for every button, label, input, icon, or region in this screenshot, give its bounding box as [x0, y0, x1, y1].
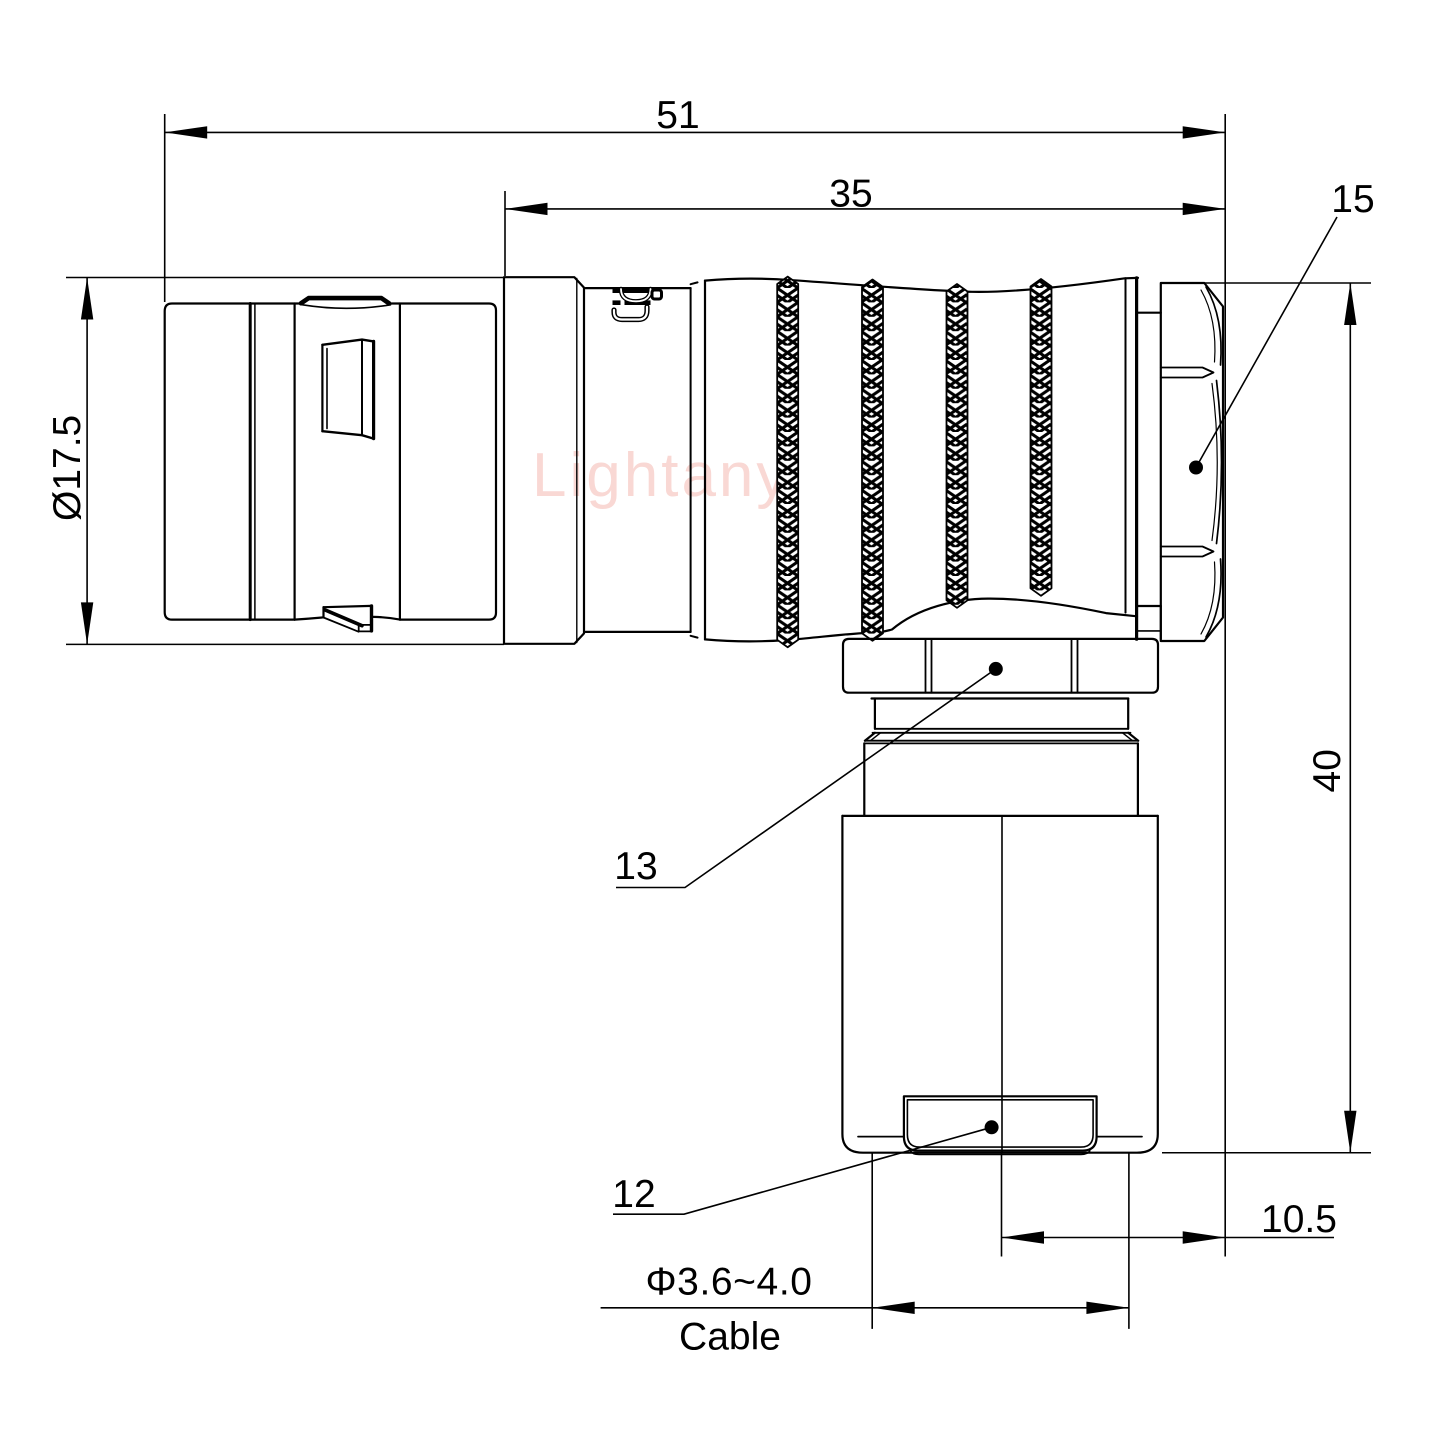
svg-text:15: 15 [1331, 178, 1374, 221]
svg-text:Lightany: Lightany [532, 441, 790, 510]
svg-text:Cable: Cable [679, 1316, 781, 1359]
svg-text:Φ3.6~4.0: Φ3.6~4.0 [645, 1261, 812, 1304]
svg-text:40: 40 [1306, 749, 1349, 792]
svg-text:10.5: 10.5 [1261, 1198, 1337, 1241]
svg-text:51: 51 [656, 94, 699, 137]
svg-text:Ø17.5: Ø17.5 [46, 415, 89, 521]
svg-text:35: 35 [829, 173, 872, 216]
svg-text:12: 12 [612, 1173, 655, 1216]
svg-text:13: 13 [614, 845, 657, 888]
